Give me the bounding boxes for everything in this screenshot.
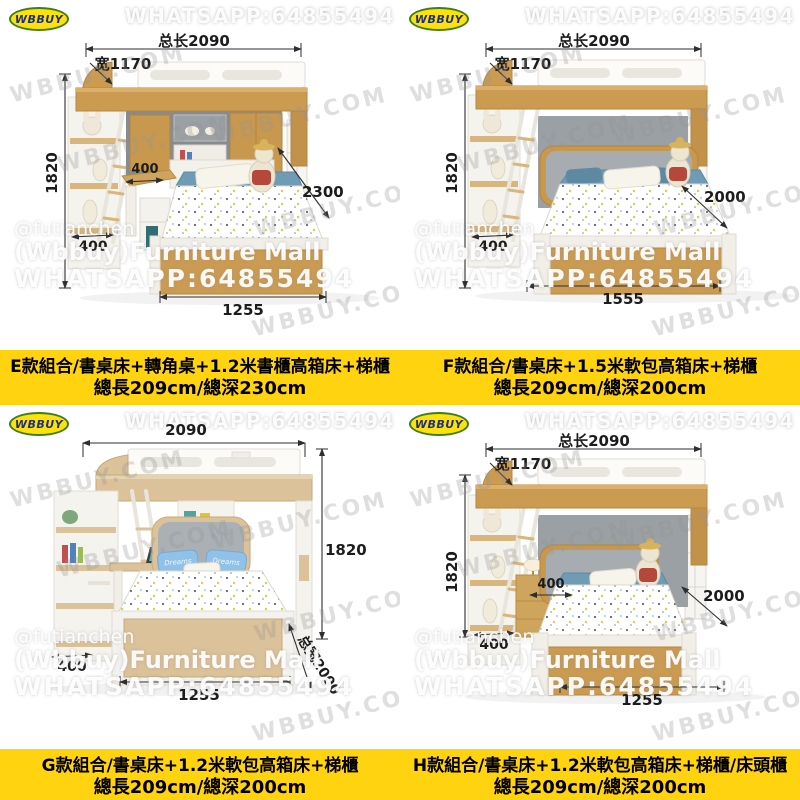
watermark-whatsapp: WHATSAPP:64855494 bbox=[125, 4, 395, 28]
dim-width: 宽1170 bbox=[492, 453, 554, 474]
dim-total-length: 总长2090 bbox=[534, 430, 654, 451]
loft-guardrail bbox=[128, 449, 300, 475]
dim-height: 1820 bbox=[325, 541, 367, 559]
watermark-seller-block: @futianchen (Wbbuy)Furniture Mall WHATSA… bbox=[14, 627, 354, 700]
dim-total-length: 2090 bbox=[146, 421, 226, 439]
wbbuy-logo: WBBUY bbox=[9, 412, 69, 436]
loft-guardrail bbox=[538, 60, 705, 86]
loft-guardrail bbox=[538, 459, 705, 485]
duck-plush bbox=[636, 538, 661, 588]
panel-e: WBBUY WHATSAPP:64855494 总长2090 宽1170 182… bbox=[0, 0, 400, 350]
caption-band-top: E款組合/書桌床+轉角桌+1.2米書櫃高箱床+梯櫃 總長209cm/總深230c… bbox=[0, 350, 800, 405]
watermark-seller-block: @futianchen (Wbbuy)Furniture Mall WHATSA… bbox=[414, 219, 754, 292]
dim-desk-depth: 400 bbox=[125, 162, 165, 177]
dim-height: 1820 bbox=[443, 149, 461, 197]
watermark-seller-block: @futianchen (Wbbuy)Furniture Mall WHATSA… bbox=[14, 219, 354, 292]
dim-diag-depth: 2300 bbox=[302, 183, 344, 201]
wbbuy-logo: WBBUY bbox=[409, 7, 469, 31]
dim-width: 宽1170 bbox=[492, 53, 554, 74]
panel-f: WBBUY WHATSAPP:64855494 总长2090 宽1170 182… bbox=[400, 0, 800, 350]
dim-height: 1820 bbox=[443, 548, 461, 596]
caption-h: H款組合/書桌床+1.2米軟包高箱床+梯櫃/床頭櫃 總長209cm/總深200c… bbox=[400, 749, 800, 800]
dim-height: 1820 bbox=[43, 149, 61, 197]
dim-total-length: 总长2090 bbox=[134, 30, 254, 51]
dim-nightstand-depth: 400 bbox=[530, 577, 572, 592]
wbbuy-logo: WBBUY bbox=[409, 412, 469, 436]
caption-g: G款組合/書桌床+1.2米軟包高箱床+梯櫃 總長209cm/總深200cm bbox=[0, 749, 400, 800]
dim-diag-depth: 2000 bbox=[703, 587, 745, 605]
product-sheet: WBBUY WHATSAPP:64855494 总长2090 宽1170 182… bbox=[0, 0, 800, 800]
caption-f: F款組合/書桌床+1.5米軟包高箱床+梯櫃 總長209cm/總深200cm bbox=[400, 350, 800, 405]
duck-plush bbox=[666, 137, 691, 187]
panel-g: Dreams Dreams bbox=[0, 405, 400, 749]
wbbuy-logo: WBBUY bbox=[9, 7, 69, 31]
caption-band-bottom: G款組合/書桌床+1.2米軟包高箱床+梯櫃 總長209cm/總深200cm H款… bbox=[0, 749, 800, 800]
watermark-seller-block: @futianchen (Wbbuy)Furniture Mall WHATSA… bbox=[414, 627, 754, 700]
dim-diag-depth: 2000 bbox=[704, 188, 746, 206]
caption-e: E款組合/書桌床+轉角桌+1.2米書櫃高箱床+梯櫃 總長209cm/總深230c… bbox=[0, 350, 400, 405]
panel-h: WBBUY WHATSAPP:64855494 总长2090 宽1170 182… bbox=[400, 405, 800, 749]
dim-total-length: 总长2090 bbox=[534, 30, 654, 51]
dim-bed-length: 1255 bbox=[203, 301, 283, 319]
loft-guardrail bbox=[138, 62, 305, 88]
watermark-whatsapp: WHATSAPP:64855494 bbox=[525, 4, 795, 28]
dim-width: 宽1170 bbox=[92, 53, 154, 74]
